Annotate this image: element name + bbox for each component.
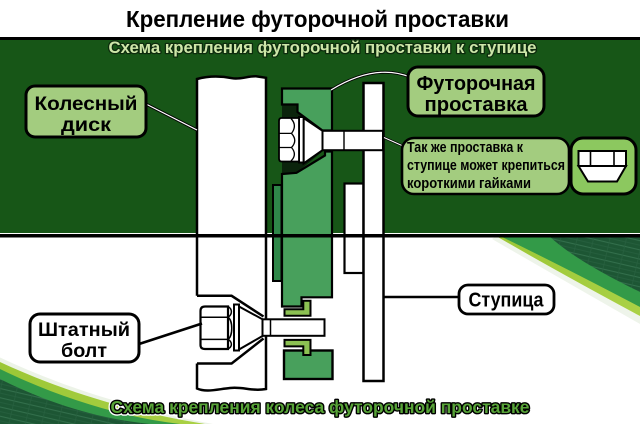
svg-text:ступице может крепиться: ступице может крепиться [407,157,565,174]
svg-text:проставка: проставка [425,94,529,116]
svg-text:Ступица: Ступица [469,289,545,312]
svg-text:Футорочная: Футорочная [417,73,536,95]
svg-text:Крепление футорочной проставки: Крепление футорочной проставки [126,6,509,32]
svg-text:диск: диск [61,114,111,136]
svg-text:Схема крепления футорочной про: Схема крепления футорочной проставки к с… [109,39,537,57]
svg-text:Схема крепления колеса футороч: Схема крепления колеса футорочной проста… [111,397,530,417]
svg-text:болт: болт [61,340,107,362]
svg-text:Колесный: Колесный [35,93,138,115]
svg-text:короткими гайками: короткими гайками [407,175,531,192]
svg-text:Штатный: Штатный [38,319,130,341]
svg-text:Так же проставка к: Так же проставка к [407,139,523,156]
